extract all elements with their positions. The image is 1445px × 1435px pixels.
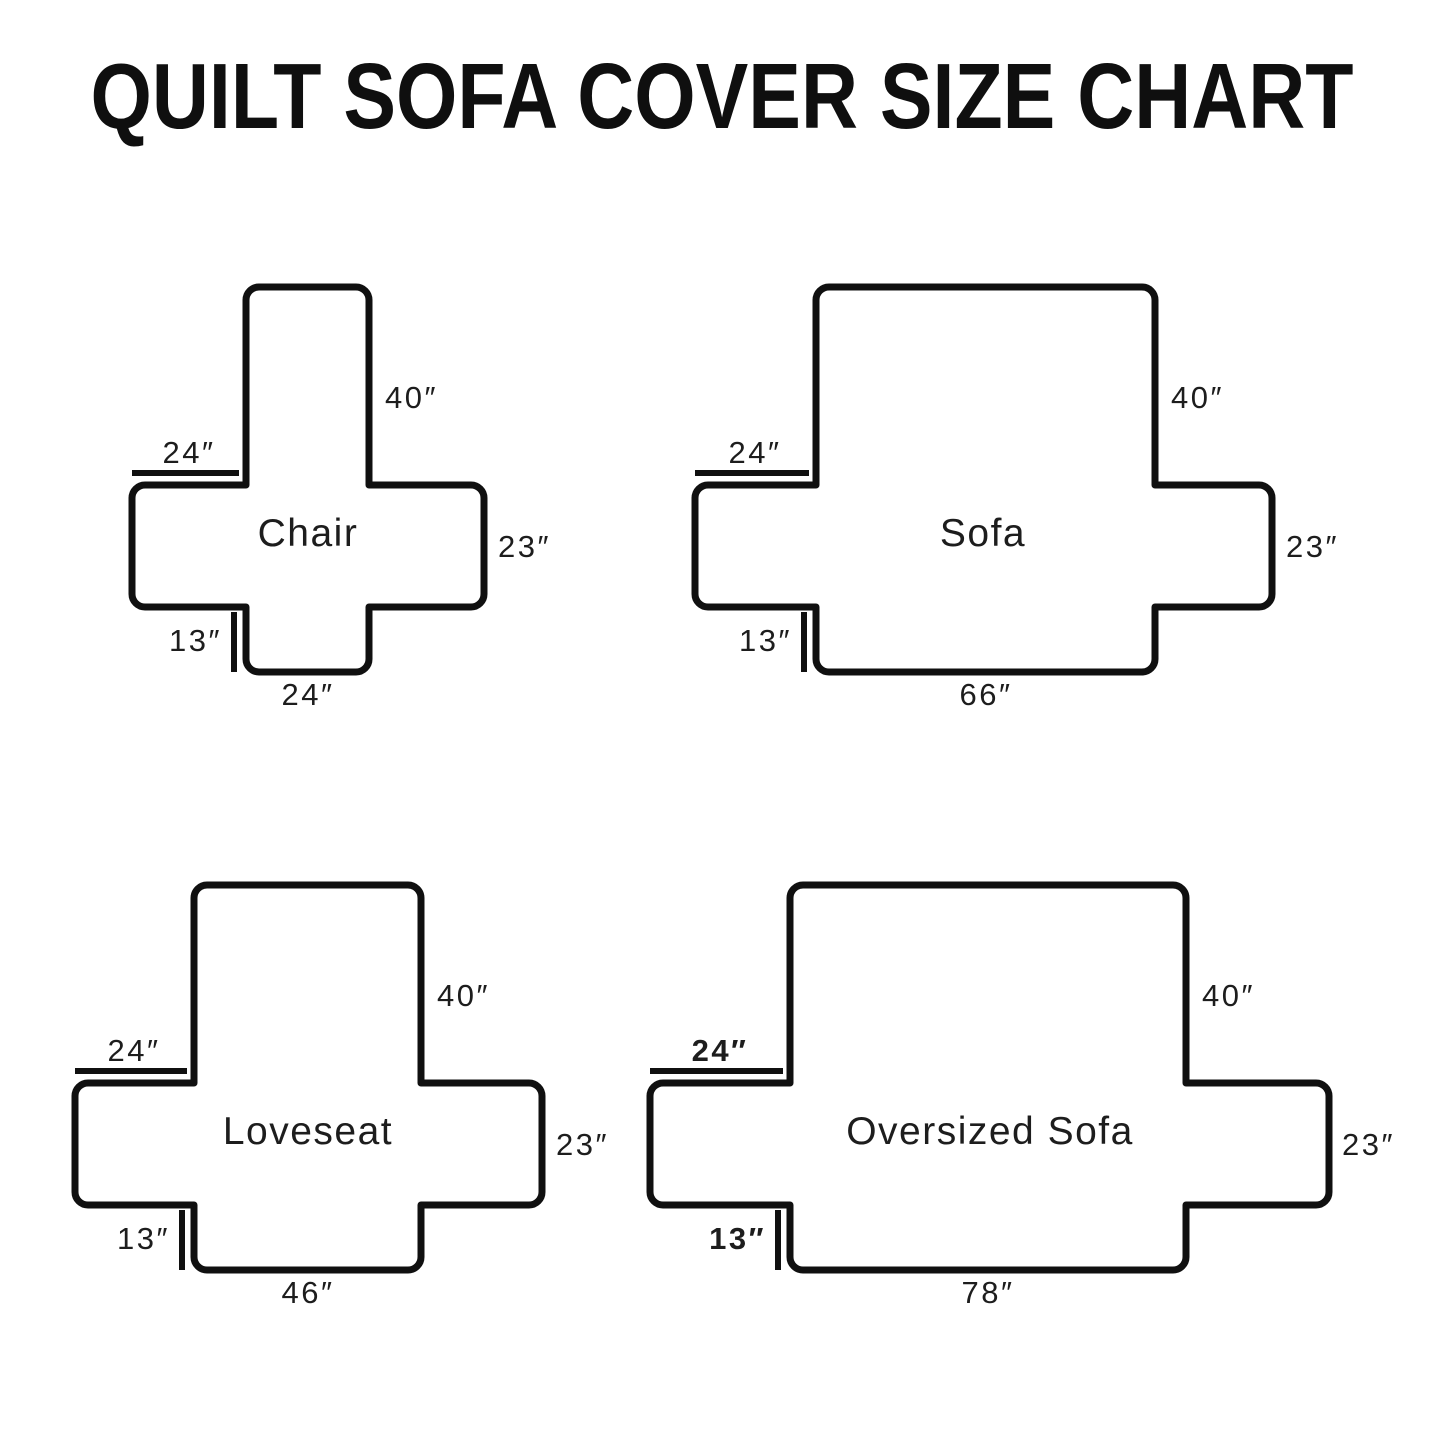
- diagram-loveseat: 40″ 24″ 23″ 13″ 46″ Loveseat: [75, 885, 609, 1310]
- chair-back-height-label: 40″: [385, 380, 438, 415]
- oversized-sofa-back-height-label: 40″: [1202, 978, 1255, 1013]
- sofa-side-height-label: 23″: [1286, 529, 1339, 564]
- sofa-back-height-label: 40″: [1171, 380, 1224, 415]
- loveseat-back-height-label: 40″: [437, 978, 490, 1013]
- loveseat-front-skirt-label: 13″: [117, 1221, 170, 1256]
- oversized-sofa-bottom-width-label: 78″: [962, 1275, 1015, 1310]
- diagram-oversized-sofa: 40″ 24″ 23″ 13″ 78″ Oversized Sofa: [650, 885, 1395, 1310]
- sofa-arm-width-label: 24″: [729, 435, 782, 470]
- sofa-bottom-width-label: 66″: [960, 677, 1013, 712]
- chart-title: QUILT SOFA COVER SIZE CHART: [91, 44, 1354, 148]
- sofa-name-label: Sofa: [940, 512, 1026, 555]
- chair-cover-outline: [132, 287, 484, 672]
- loveseat-bottom-width-label: 46″: [282, 1275, 335, 1310]
- oversized-sofa-cover-outline: [650, 885, 1329, 1270]
- chair-side-height-label: 23″: [498, 529, 551, 564]
- sofa-cover-outline: [695, 287, 1272, 672]
- loveseat-cover-outline: [75, 885, 542, 1270]
- chair-arm-width-label: 24″: [163, 435, 216, 470]
- loveseat-arm-width-label: 24″: [108, 1033, 161, 1068]
- loveseat-name-label: Loveseat: [223, 1110, 393, 1153]
- oversized-sofa-side-height-label: 23″: [1342, 1127, 1395, 1162]
- chair-name-label: Chair: [258, 512, 359, 555]
- diagram-chair: 40″ 24″ 23″ 13″ 24″ Chair: [132, 287, 551, 712]
- diagram-sofa: 40″ 24″ 23″ 13″ 66″ Sofa: [695, 287, 1339, 712]
- size-chart-canvas: QUILT SOFA COVER SIZE CHART 40″ 24″ 23″ …: [0, 0, 1445, 1435]
- sofa-front-skirt-label: 13″: [739, 623, 792, 658]
- oversized-sofa-arm-width-label: 24″: [692, 1033, 749, 1068]
- chair-front-skirt-label: 13″: [169, 623, 222, 658]
- oversized-sofa-name-label: Oversized Sofa: [846, 1110, 1134, 1153]
- loveseat-side-height-label: 23″: [556, 1127, 609, 1162]
- oversized-sofa-front-skirt-label: 13″: [709, 1221, 766, 1256]
- chair-bottom-width-label: 24″: [282, 677, 335, 712]
